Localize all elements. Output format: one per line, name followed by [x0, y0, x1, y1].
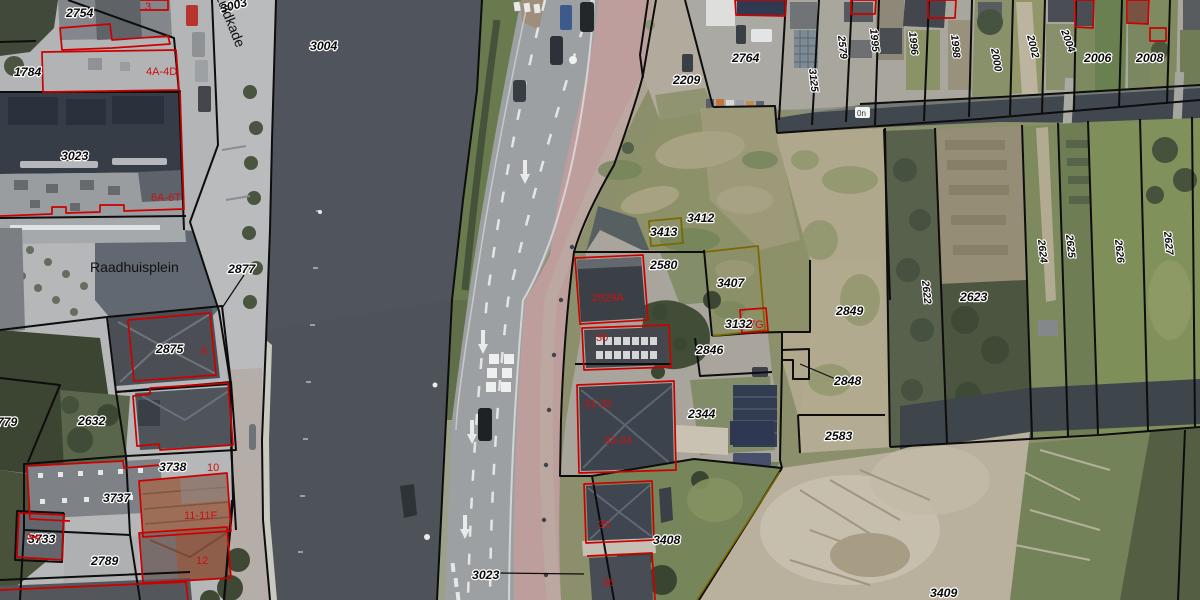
svg-text:6A-6T: 6A-6T — [151, 192, 181, 204]
svg-text:2209: 2209 — [672, 73, 701, 87]
svg-text:2624: 2624 — [1035, 238, 1049, 264]
svg-text:2929A: 2929A — [592, 292, 624, 304]
svg-text:2583: 2583 — [824, 429, 853, 443]
svg-text:11-11F: 11-11F — [184, 510, 218, 522]
svg-text:7G: 7G — [749, 319, 764, 331]
svg-text:3004: 3004 — [310, 39, 338, 53]
svg-text:0n: 0n — [857, 109, 866, 118]
svg-text:2877: 2877 — [227, 262, 257, 276]
svg-text:2579: 2579 — [835, 34, 849, 60]
svg-text:1995: 1995 — [867, 28, 881, 53]
svg-text:3738: 3738 — [159, 460, 187, 474]
svg-text:12: 12 — [196, 555, 208, 567]
svg-text:Raadhuisplein: Raadhuisplein — [90, 259, 179, 275]
svg-text:2848: 2848 — [833, 374, 862, 388]
svg-text:35: 35 — [598, 519, 610, 531]
svg-text:3125: 3125 — [806, 68, 820, 93]
svg-text:3023: 3023 — [61, 149, 89, 163]
svg-text:33-34: 33-34 — [604, 435, 632, 447]
svg-text:3023: 3023 — [472, 568, 500, 582]
svg-text:8: 8 — [201, 345, 207, 357]
svg-text:2754: 2754 — [65, 6, 94, 20]
svg-text:2625: 2625 — [1063, 233, 1077, 259]
svg-text:3.: 3. — [145, 1, 154, 13]
svg-text:2789: 2789 — [90, 554, 119, 568]
svg-text:2344: 2344 — [687, 407, 716, 421]
svg-text:2875: 2875 — [155, 342, 184, 356]
svg-text:30: 30 — [596, 332, 608, 344]
svg-text:2580: 2580 — [649, 258, 678, 272]
svg-text:3409: 3409 — [930, 586, 958, 600]
svg-text:31-32: 31-32 — [584, 398, 612, 410]
svg-text:3737: 3737 — [103, 491, 132, 505]
svg-text:10: 10 — [207, 462, 219, 474]
svg-text:2008: 2008 — [1135, 51, 1164, 65]
svg-text:3412: 3412 — [687, 211, 715, 225]
svg-text:3413: 3413 — [650, 225, 678, 239]
svg-text:2849: 2849 — [835, 304, 864, 318]
svg-text:3733: 3733 — [28, 532, 56, 546]
svg-text:2846: 2846 — [695, 343, 724, 357]
svg-text:1998: 1998 — [948, 34, 962, 59]
svg-text:1784: 1784 — [14, 65, 42, 79]
svg-text:2632: 2632 — [77, 414, 106, 428]
svg-text:3408: 3408 — [653, 533, 681, 547]
svg-text:3779: 3779 — [0, 415, 18, 429]
svg-text:1996: 1996 — [906, 31, 920, 56]
svg-text:3407: 3407 — [717, 276, 746, 290]
svg-text:2764: 2764 — [731, 51, 760, 65]
svg-text:2622: 2622 — [919, 279, 933, 305]
svg-text:2626: 2626 — [1112, 238, 1126, 264]
svg-text:4A-4D: 4A-4D — [146, 66, 177, 78]
svg-text:2006: 2006 — [1083, 51, 1112, 65]
svg-text:2623: 2623 — [959, 290, 988, 304]
svg-text:36: 36 — [602, 577, 614, 589]
